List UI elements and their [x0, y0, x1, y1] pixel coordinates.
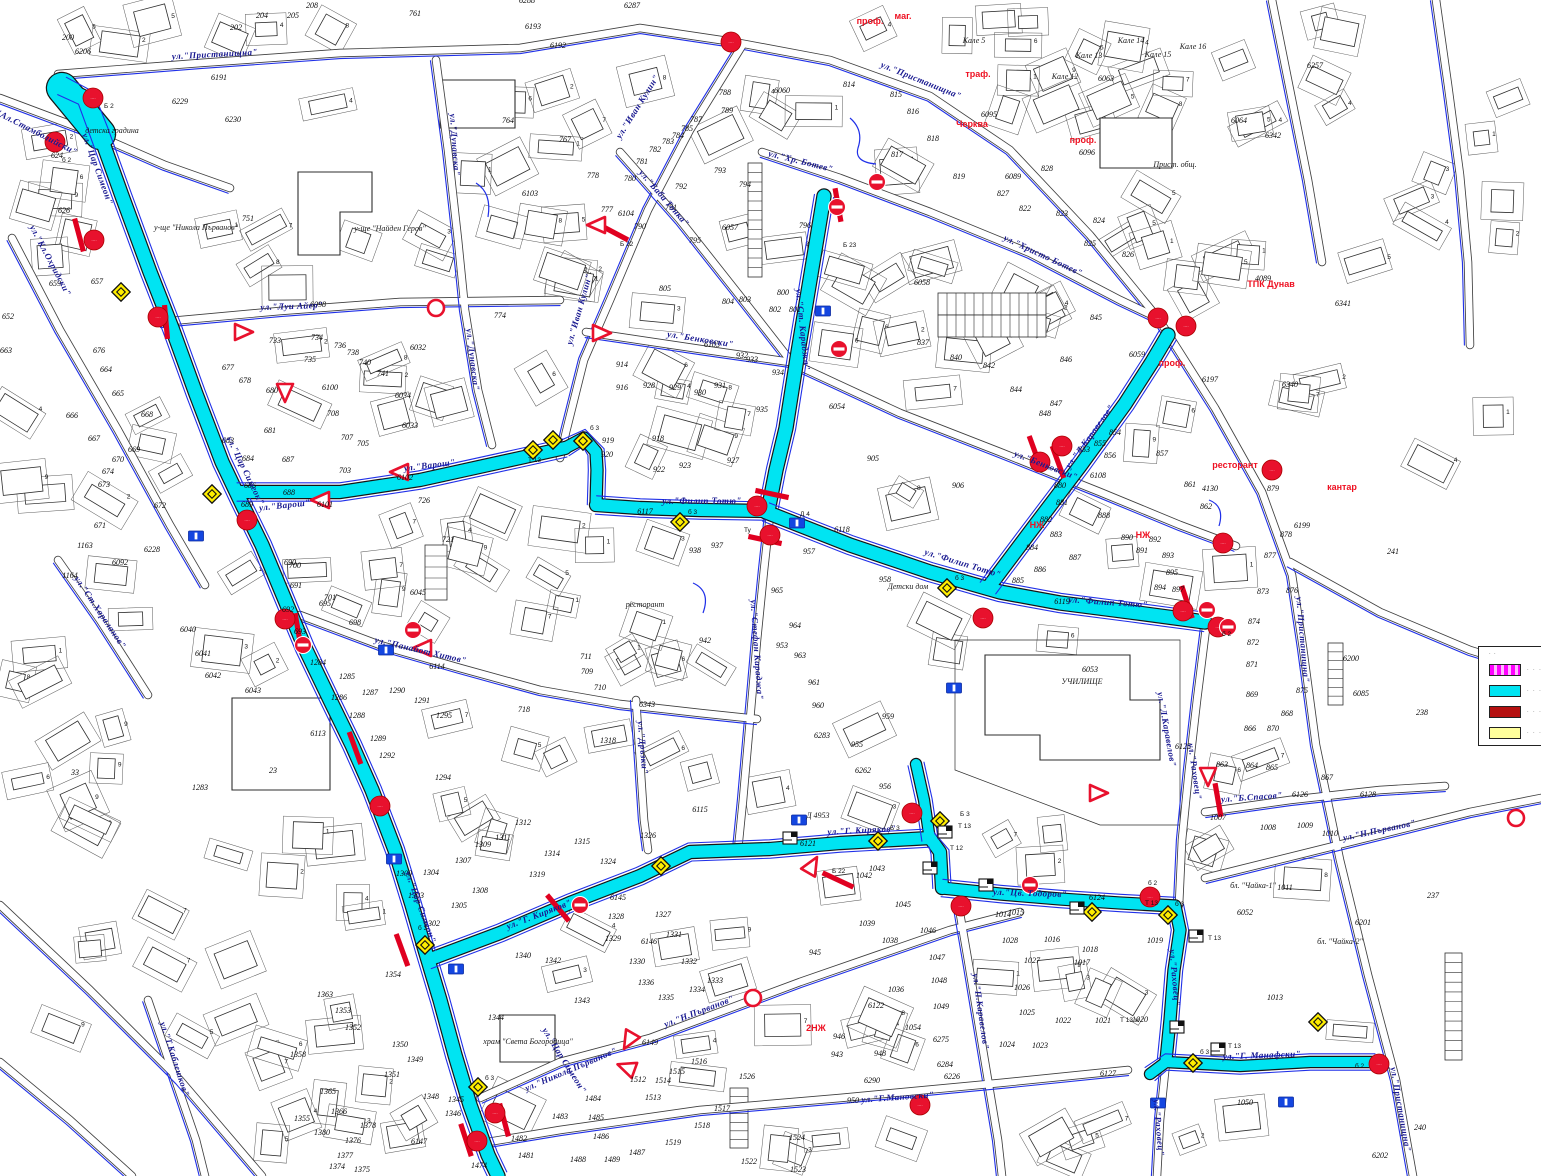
parcel-number: 1018 [1082, 945, 1098, 954]
parcel-number: 1311 [495, 833, 510, 842]
parcel-number: 1285 [339, 672, 355, 681]
parcel-number: 945 [809, 948, 821, 957]
parcel-number: 931 [714, 381, 726, 390]
parcel-number: 676 [93, 346, 105, 355]
parcel-digit: 7 [284, 1058, 288, 1065]
parcel-number: 953 [776, 641, 788, 650]
parcel-number: 1350 [392, 1040, 408, 1049]
parcel-number: 1331 [666, 930, 682, 939]
parcel-digit: 9 [124, 721, 128, 728]
parcel-number: 680 [266, 386, 278, 395]
parcel-number: 1324 [600, 857, 616, 866]
parcel-number: 876 [1286, 586, 1298, 595]
building [1066, 972, 1085, 992]
parcel-digit: 4 [280, 22, 284, 29]
parcel-number: 6096 [1079, 148, 1095, 157]
building [1132, 430, 1150, 458]
parcel-number: 920 [601, 450, 613, 459]
building [982, 10, 1015, 28]
parcel-number: 1377 [337, 1151, 354, 1160]
parcel-number: 6054 [829, 402, 845, 411]
parcel-number: 1514 [655, 1076, 671, 1085]
hydrant-node-id: ···· [155, 315, 160, 320]
parcel-number: 1515 [669, 1067, 685, 1076]
parcel-number: 1013 [1267, 993, 1283, 1002]
parcel-number: 1365 [320, 1087, 336, 1096]
parcel-digit: 7 [548, 614, 552, 621]
parcel-number: 1318 [600, 736, 616, 745]
legend-item-cyan: · · · · · · [1489, 680, 1541, 701]
cadastral-map[interactable]: 3749534224719656184998962726234984373447… [0, 0, 1541, 1176]
parcel-number: 795 [689, 236, 701, 245]
building [261, 1130, 283, 1156]
building [1111, 544, 1133, 561]
parcel-digit: 6 [552, 371, 556, 378]
parcel-number: 1045 [895, 900, 911, 909]
parcel-number: 1355 [294, 1114, 310, 1123]
parcel-digit: 7 [1125, 1116, 1129, 1123]
parcel-number: 1024 [999, 1040, 1015, 1049]
parcel-number: 6042 [205, 671, 221, 680]
parcel-digit: 8 [728, 384, 732, 391]
parcel-digit: 5 [92, 23, 96, 30]
parcel-number: 1518 [694, 1121, 710, 1130]
parcel-number: 6121 [800, 839, 816, 848]
parcel-number: 869 [1246, 690, 1258, 699]
parcel-number: 1522 [741, 1157, 757, 1166]
parcel-number: 1512 [630, 1075, 646, 1084]
parcel-digit: 9 [734, 433, 738, 440]
parcel-number: 1314 [544, 849, 560, 858]
parcel-digit: 6 [1237, 767, 1241, 774]
parcel-number: 6145 [610, 893, 626, 902]
parcel-number: 905 [867, 454, 879, 463]
parcel-number: 854 [1109, 428, 1121, 437]
fitting-box-tab-icon [1178, 1021, 1184, 1026]
building [812, 1133, 840, 1147]
parcel-digit: 8 [345, 23, 349, 30]
parcel-number: 1042 [856, 871, 872, 880]
poi-red-label: маг. [895, 11, 912, 21]
parcel-number: 1340 [515, 951, 531, 960]
parcel-number: 803 [739, 295, 751, 304]
parcel-number: 1019 [1147, 936, 1163, 945]
parcel-number: 1336 [638, 978, 654, 987]
hydrant-node-id: ···· [1220, 541, 1225, 546]
parcel-number: 1481 [518, 1151, 534, 1160]
parcel-number: 1348 [423, 1092, 439, 1101]
open-circle-marker[interactable] [1508, 810, 1524, 826]
parcel-number: 1488 [570, 1155, 586, 1164]
building [1043, 824, 1063, 843]
parcel-number: 1289 [370, 734, 386, 743]
parcel-number: 935 [756, 405, 768, 414]
building [1163, 76, 1184, 90]
parcel-number: 1326 [640, 831, 656, 840]
building [765, 1014, 801, 1037]
parcel-number: 875 [1296, 686, 1308, 695]
parcel-number: 937 [711, 541, 724, 550]
fitting-box-tab-icon [1197, 930, 1203, 935]
parcel-digit: 2 [142, 37, 146, 44]
parcel-number: 943 [831, 1050, 843, 1059]
parcel-number: 670 [112, 455, 124, 464]
parcel-number: 33 [70, 768, 79, 777]
hydrant-node-id: ···· [909, 811, 914, 816]
parcel-digit: 5 [538, 742, 542, 749]
parcel-number: 782 [649, 145, 661, 154]
map-legend: · · · · · · · · · · · · · · · · · · · · … [1478, 646, 1541, 746]
building [1163, 401, 1190, 427]
parcel-number: 964 [789, 621, 801, 630]
parcel-number: 1287 [362, 688, 379, 697]
parcel-number: 840 [950, 353, 962, 362]
parcel-digit: 1 [1492, 131, 1496, 138]
parcel-number: 671 [94, 521, 106, 530]
building [378, 579, 400, 607]
technical-code-label: б 2 [1355, 1062, 1365, 1070]
parcel-number: 866 [1244, 724, 1256, 733]
parcel-number: 825 [1084, 239, 1096, 248]
parcel-number: 1284 [310, 658, 326, 667]
parcel-digit: 1 [326, 828, 330, 835]
poi-red-label: проф. [857, 16, 884, 26]
parcel-number: 6290 [864, 1076, 880, 1085]
parcel-number: 1050 [1237, 1098, 1253, 1107]
parcel-number: 6063 [1098, 74, 1114, 83]
parcel-digit: 8 [917, 485, 921, 492]
parcel-number: 6191 [211, 73, 227, 82]
parcel-number: 816 [907, 107, 919, 116]
parcel-number: 6117 [637, 507, 653, 516]
parcel-number: 6200 [1343, 654, 1359, 663]
parcel-digit: 9 [484, 544, 488, 551]
technical-code-label: Т 13 [1208, 935, 1221, 942]
parcel-number: 1011 [1277, 883, 1292, 892]
parcel-digit: 4 [349, 97, 353, 104]
parcel-digit: 4 [612, 923, 616, 930]
parcel-number: 1008 [1260, 823, 1276, 832]
parcel-number: 1517 [714, 1104, 731, 1113]
parcel-number: 237 [1427, 891, 1440, 900]
parcel-number: 1523 [790, 1165, 806, 1174]
hydrant-node-id: ···· [958, 904, 963, 909]
parcel-digit: 7 [187, 958, 191, 965]
parcel-digit: 4 [39, 406, 43, 413]
parcel-number: 721 [442, 535, 454, 544]
parcel-number: 934 [772, 368, 784, 377]
parcel-number: 1474 [471, 1161, 487, 1170]
building [1213, 554, 1248, 583]
hydrant-node-id: ···· [282, 617, 287, 622]
parcel-number: 701 [324, 593, 336, 602]
parcel-number: 1526 [739, 1072, 755, 1081]
parcel-number: 862 [1200, 502, 1212, 511]
parcel-digit: 4 [1065, 300, 1069, 307]
building [97, 758, 115, 779]
parcel-number: 240 [1414, 1123, 1426, 1132]
parcel-digit: 2 [1516, 231, 1520, 238]
parcel-number: 1358 [290, 1050, 306, 1059]
parcel-number: 6064 [1231, 116, 1247, 125]
parcel-digit: 2 [276, 658, 280, 665]
poi-label: бл. "Чайка-1" [1230, 881, 1276, 890]
parcel-number: 1343 [574, 996, 590, 1005]
parcel-number: 1487 [629, 1148, 646, 1157]
no-entry-bar-icon [834, 347, 845, 350]
parcel-number: 880 [1054, 481, 1066, 490]
parcel-number: 6228 [144, 545, 160, 554]
parcel-number: 828 [1041, 164, 1053, 173]
parcel-number: 863 [1216, 760, 1228, 769]
parcel-number: 800 [777, 288, 789, 297]
parcel-digit: 4 [1445, 219, 1449, 226]
parcel-number: 741 [377, 369, 389, 378]
parcel-digit: 8 [404, 355, 408, 362]
parcel-number: 6034 [395, 391, 411, 400]
parcel-number: 693 [294, 627, 306, 636]
parcel-number: 961 [808, 678, 820, 687]
parcel-digit: 3 [893, 804, 897, 811]
hydrant-node-id: ···· [474, 1139, 479, 1144]
parcel-number: 6230 [225, 115, 241, 124]
poi-label: у-ще "Найден Геров" [353, 224, 426, 233]
parcel-number: 6052 [1237, 908, 1253, 917]
parcel-number: 738 [347, 348, 359, 357]
parcel-number: 1483 [552, 1112, 568, 1121]
parcel-number: 1307 [455, 856, 472, 865]
parcel-digit: 2 [598, 266, 602, 273]
poi-red-label: Черква [956, 119, 989, 129]
parcel-number: 1305 [451, 901, 467, 910]
parcel-number: 1047 [929, 953, 946, 962]
parcel-number: 6197 [1202, 375, 1219, 384]
open-circle-marker[interactable] [428, 300, 444, 316]
building [266, 862, 298, 889]
legend-header: · · [1489, 651, 1541, 659]
parcel-number: 6122 [868, 1001, 884, 1010]
poi-label: Кале 12 [1051, 72, 1079, 81]
technical-code-label: б 2 [1148, 879, 1158, 887]
hydrant-marker-icon [1285, 1099, 1288, 1106]
parcel-digit: 6 [855, 338, 859, 345]
poi-red-label: НЖ [1136, 530, 1151, 540]
parcel-number: 692 [282, 605, 294, 614]
parcel-number: 1022 [1055, 1016, 1071, 1025]
parcel-number: 751 [242, 214, 254, 223]
parcel-number: 1017 [1074, 958, 1091, 967]
parcel-number: 200 [62, 33, 74, 42]
parcel-digit: 4 [786, 785, 790, 792]
technical-code-label: б 3 [418, 924, 428, 932]
garage-strip [1445, 953, 1462, 1060]
parcel-number: 1046 [920, 926, 936, 935]
parcel-number: 1054 [905, 1023, 921, 1032]
parcel-number: 6126 [1292, 790, 1308, 799]
parcel-number: 1294 [435, 773, 451, 782]
parcel-digit: 6 [528, 95, 532, 102]
parcel-number: 6103 [522, 189, 538, 198]
parcel-number: 877 [1264, 551, 1277, 560]
parcel-number: 1489 [604, 1155, 620, 1164]
parcel-number: 1351 [384, 1070, 400, 1079]
parcel-number: 740 [359, 358, 371, 367]
building [1046, 631, 1068, 648]
parcel-digit: 4 [888, 22, 892, 29]
parcel-digit: 7 [953, 386, 957, 393]
parcel-digit: 4 [468, 527, 472, 534]
parcel-digit: 8 [276, 259, 280, 266]
parcel-number: 884 [1026, 543, 1038, 552]
parcel-number: 842 [983, 361, 995, 370]
parcel-number: 6343 [639, 700, 655, 709]
parcel-number: 1312 [515, 818, 531, 827]
parcel-number: 837 [917, 338, 930, 347]
building-arena [232, 698, 330, 790]
parcel-number: 1349 [407, 1055, 423, 1064]
technical-code-label: Т 13 [1228, 1043, 1241, 1050]
parcel-number: 668 [141, 410, 153, 419]
parcel-number: 6341 [1335, 299, 1351, 308]
parcel-number: 956 [879, 782, 891, 791]
parcel-number: 673 [98, 480, 110, 489]
parcel-digit: 6 [299, 1041, 303, 1048]
parcel-number: 6193 [525, 22, 541, 31]
building [255, 22, 277, 37]
garage-strip [730, 1088, 748, 1148]
technical-code-label: Т 13 [958, 823, 971, 830]
parcel-number: 950 [847, 1096, 859, 1105]
parcel-digit: 5 [285, 1136, 289, 1143]
parcel-number: 1376 [345, 1136, 361, 1145]
building [724, 406, 746, 430]
parcel-digit: 2 [1342, 374, 1346, 381]
parcel-number: 735 [304, 355, 316, 364]
parcel-digit: 2 [1058, 858, 1062, 865]
parcel-number: 6041 [195, 649, 211, 658]
parcel-number: 23 [269, 766, 277, 775]
parcel-number: 1354 [385, 970, 401, 979]
parcel-number: 761 [409, 9, 421, 18]
parcel-digit: 3 [1446, 166, 1450, 173]
parcel-number: 948 [874, 1049, 886, 1058]
parcel-digit: 5 [1387, 254, 1391, 261]
technical-code-label: Б 22 [832, 868, 846, 875]
legend-swatch-yellow [1489, 727, 1521, 739]
no-entry-bar-icon [1202, 608, 1213, 611]
parcel-number: 1027 [1024, 956, 1041, 965]
parcel-digit: 9 [402, 586, 406, 593]
parcel-number: 1345 [448, 1095, 464, 1104]
parcel-number: 894 [1154, 583, 1166, 592]
parcel-number: 872 [1247, 638, 1259, 647]
parcel-digit: 3 [583, 967, 587, 974]
technical-code-label: б 3 [1200, 1048, 1210, 1056]
parcel-number: 241 [1387, 547, 1399, 556]
parcel-number: 864 [1246, 761, 1258, 770]
parcel-number: 6100 [322, 383, 338, 392]
parcel-number: 1010 [1322, 829, 1338, 838]
parcel-number: 6149 [642, 1038, 658, 1047]
poi-red-label: НЖ [1030, 520, 1045, 530]
parcel-digit: 6 [681, 656, 685, 663]
hydrant-node-id: ···· [1269, 468, 1274, 473]
technical-code-label: Б 23 [843, 242, 857, 249]
map-canvas[interactable]: 3749534224719656184998962726234984373447… [0, 0, 1541, 1176]
parcel-number: 6095 [981, 110, 997, 119]
parcel-number: 6288 [519, 0, 535, 5]
building [768, 1135, 790, 1163]
hydrant-node-id: ···· [728, 40, 733, 45]
parcel-number: 886 [1034, 565, 1046, 574]
technical-code-label: Т 13 ж [1120, 1017, 1140, 1024]
parcel-number: 868 [1281, 709, 1293, 718]
parcel-number: 6043 [245, 686, 261, 695]
technical-code-label: Б 22 [620, 241, 634, 248]
parcel-number: 703 [339, 466, 351, 475]
parcel-digit: 9 [45, 474, 49, 481]
open-circle-marker[interactable] [745, 990, 761, 1006]
building [525, 210, 558, 239]
parcel-number: 1291 [414, 696, 430, 705]
poi-red-label: траф. [965, 69, 990, 79]
parcel-digit: 2 [1201, 1133, 1205, 1140]
no-entry-bar-icon [1223, 625, 1234, 628]
parcel-number: 690 [284, 558, 296, 567]
no-entry-bar-icon [298, 643, 309, 646]
parcel-number: 657 [91, 277, 104, 286]
parcel-number: 1015 [1008, 908, 1024, 917]
parcel-number: 6060 [774, 86, 790, 95]
parcel-number: 1482 [511, 1134, 527, 1143]
parcel-number: 6089 [1005, 172, 1021, 181]
parcel-number: 848 [1039, 409, 1051, 418]
parcel-number: 734 [311, 333, 323, 342]
parcel-digit: 1 [488, 167, 492, 174]
parcel-number: 6059 [1129, 350, 1145, 359]
parcel-number: 844 [1010, 385, 1022, 394]
parcel-digit: 7 [1281, 753, 1285, 760]
parcel-number: 963 [794, 651, 806, 660]
parcel-digit: 9 [118, 761, 122, 768]
parcel-digit: 1 [662, 619, 666, 626]
technical-code-label: б 3 [590, 424, 600, 432]
parcel-digit: 6 [684, 362, 688, 369]
parcel-number: 1304 [423, 868, 439, 877]
parcel-number: 887 [1069, 553, 1082, 562]
no-entry-bar-icon [408, 628, 419, 631]
parcel-number: 709 [581, 667, 593, 676]
parcel-number: 1038 [882, 936, 898, 945]
parcel-number: 1366 [331, 1107, 347, 1116]
parcel-number: 1283 [192, 783, 208, 792]
parcel-number: 1513 [645, 1093, 661, 1102]
parcel-number: 846 [1060, 355, 1072, 364]
parcel-number: 726 [418, 496, 430, 505]
parcel-digit: 9 [1152, 436, 1156, 443]
poi-label: Кале 15 [1144, 50, 1172, 59]
parcel-number: 6287 [624, 1, 641, 10]
parcel-digit: 5 [1172, 190, 1176, 197]
parcel-number: 785 [681, 124, 693, 133]
parcel-number: 6201 [1355, 918, 1371, 927]
poi-label: храм "Света Богородица" [482, 1037, 573, 1046]
parcel-number: 885 [1012, 576, 1024, 585]
parcel-digit: 4 [687, 383, 691, 390]
parcel-number: 669 [128, 445, 140, 454]
parcel-digit: 5 [565, 570, 569, 577]
parcel-digit: 1 [1033, 73, 1037, 80]
